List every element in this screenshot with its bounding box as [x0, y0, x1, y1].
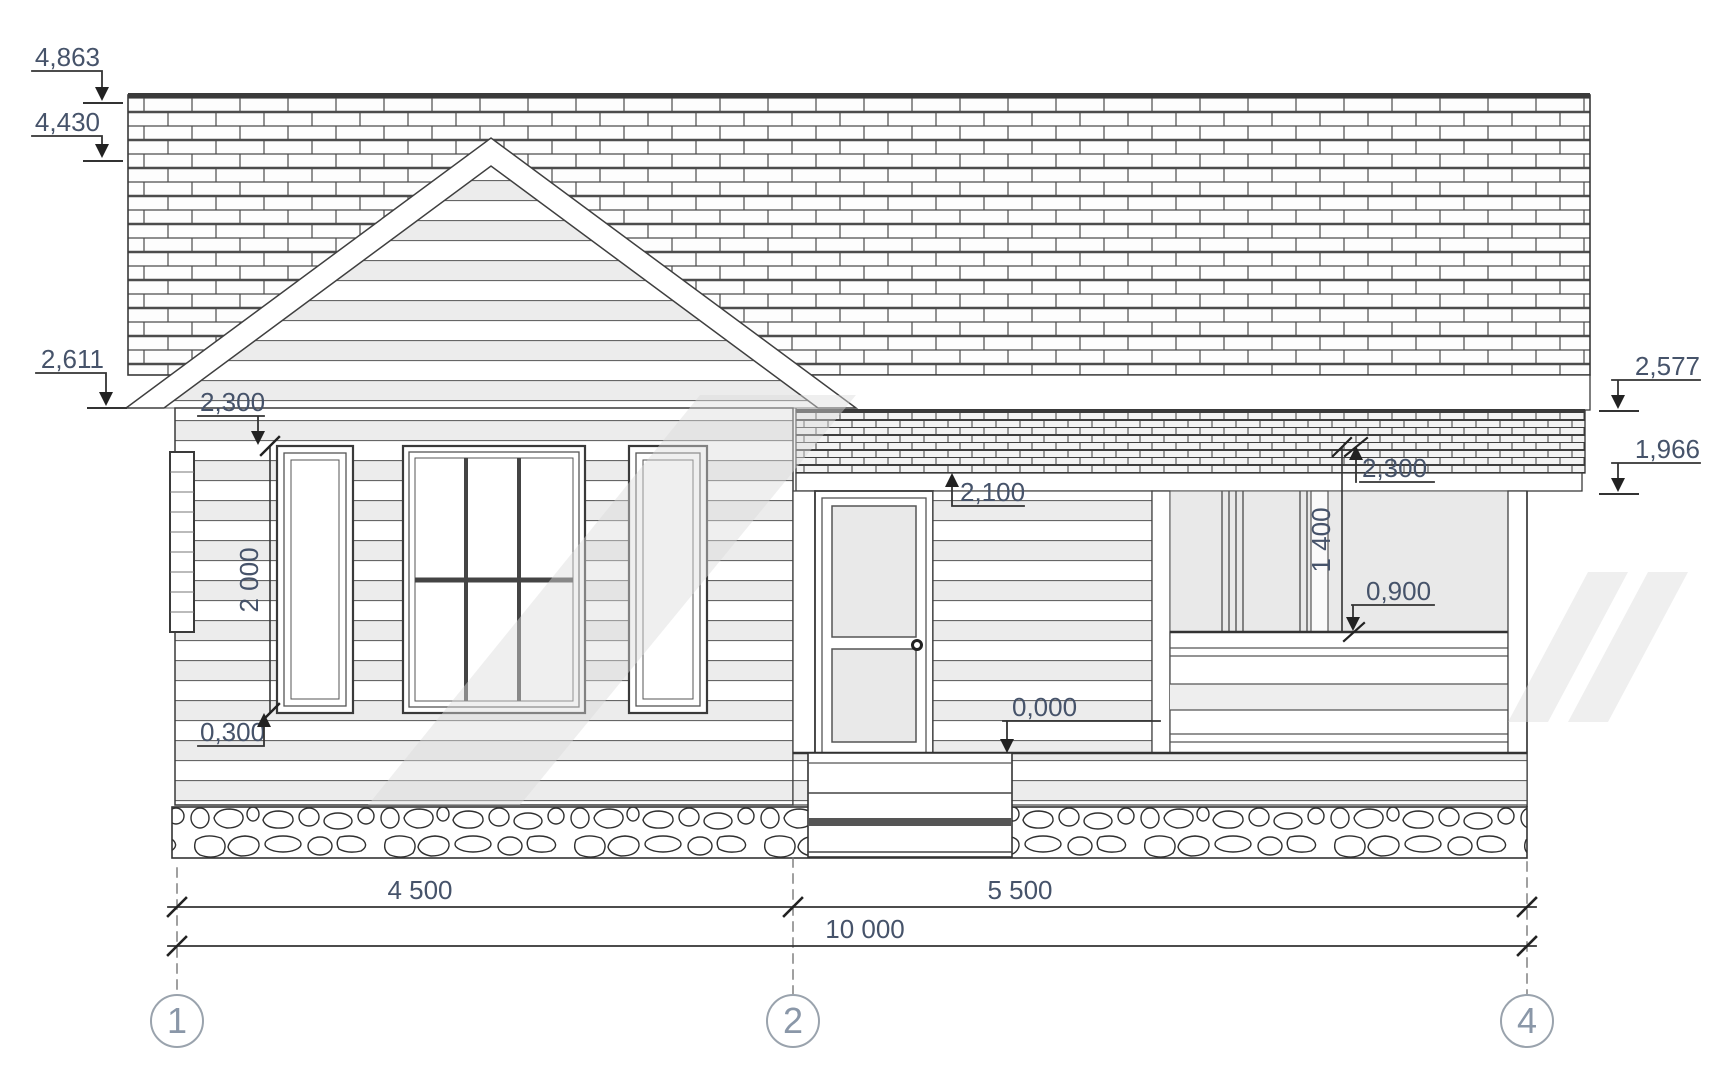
eave-left-level-label: 2,611 [41, 344, 104, 374]
down-arrow-icon [99, 392, 113, 406]
ridge-level-label: 4,863 [35, 42, 100, 72]
bay-window-head-label: 2,300 [200, 387, 265, 417]
bay-window-sill-label: 0,300 [200, 717, 265, 747]
door-upper-panel [832, 506, 916, 637]
porch-soffit [796, 473, 1582, 491]
railing-height-label: 0,900 [1366, 576, 1431, 606]
span-2-4-label: 5 500 [987, 875, 1052, 905]
porch-roof-fascia [796, 409, 1585, 473]
porch-corner-trim [793, 491, 815, 753]
marker-eave-right: 2,577 [1600, 351, 1700, 411]
bay-window-height-label: 2 000 [234, 547, 264, 612]
veranda-opening [1170, 491, 1508, 632]
marker-gable-peak: 4,430 [32, 107, 122, 161]
elevation-svg: 4,863 4,430 2,611 2,300 2 000 [0, 0, 1726, 1080]
marker-ridge: 4,863 [32, 42, 122, 103]
down-arrow-icon [1611, 478, 1625, 492]
entrance-steps [808, 753, 1012, 857]
elevation-drawing: 4,863 4,430 2,611 2,300 2 000 [0, 0, 1726, 1080]
door-lower-panel [832, 649, 916, 742]
veranda-opening-height-label: 1 400 [1306, 507, 1336, 572]
down-arrow-icon [1611, 395, 1625, 409]
eave-right-level-label: 2,577 [1635, 351, 1700, 381]
down-arrow-icon [95, 87, 109, 101]
dim-lines-bottom: 4 500 5 500 10 000 [168, 858, 1536, 995]
veranda-railing [1170, 632, 1508, 753]
door-knob-icon [913, 641, 922, 650]
down-arrow-icon [95, 144, 109, 158]
veranda-post [1152, 491, 1170, 753]
marker-bay-window-sill: 0,300 [198, 713, 271, 747]
entrance-door [815, 491, 933, 753]
porch-roof-edge-label: 1,966 [1635, 434, 1700, 464]
axis-4-label: 4 [1517, 1000, 1537, 1041]
marker-porch-roof-edge: 1,966 [1600, 434, 1700, 494]
marker-eave-left: 2,611 [36, 344, 126, 408]
veranda-ceiling-label: 2,300 [1362, 453, 1427, 483]
axis-2-label: 2 [783, 1000, 803, 1041]
door-height-label: 2,100 [960, 477, 1025, 507]
bay-corner-panel [170, 452, 194, 632]
gable-peak-level-label: 4,430 [35, 107, 100, 137]
overall-width-label: 10 000 [825, 914, 905, 944]
floor-level-label: 0,000 [1012, 692, 1077, 722]
grid-axes: 1 2 4 [151, 995, 1553, 1047]
axis-1-label: 1 [167, 1000, 187, 1041]
main-roof-fascia [796, 375, 1590, 410]
bay-window-narrow-left [277, 446, 353, 713]
building [126, 93, 1688, 858]
span-1-2-label: 4 500 [387, 875, 452, 905]
roof-ridge-edge [128, 93, 1590, 98]
